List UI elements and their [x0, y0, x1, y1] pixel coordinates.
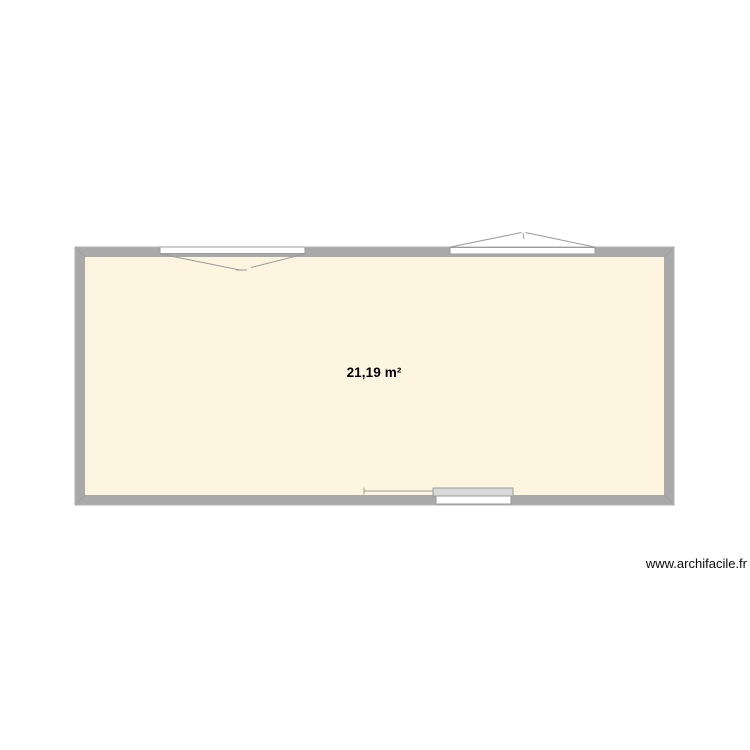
room-floor[interactable]: [85, 257, 664, 495]
window-opening-tick: [523, 233, 524, 239]
sliding-panel-open: [433, 488, 513, 496]
window-opening-line: [526, 233, 595, 248]
watermark-text: www.archifacile.fr: [646, 556, 747, 571]
sliding-panel-fixed: [436, 496, 511, 504]
window-opening-line: [451, 233, 522, 248]
plan-page: 21,19 m² www.archifacile.fr: [0, 0, 750, 750]
window-frame: [450, 248, 595, 255]
window-top-right[interactable]: [450, 233, 595, 255]
plan-canvas[interactable]: [0, 0, 750, 750]
window-frame: [160, 247, 305, 254]
